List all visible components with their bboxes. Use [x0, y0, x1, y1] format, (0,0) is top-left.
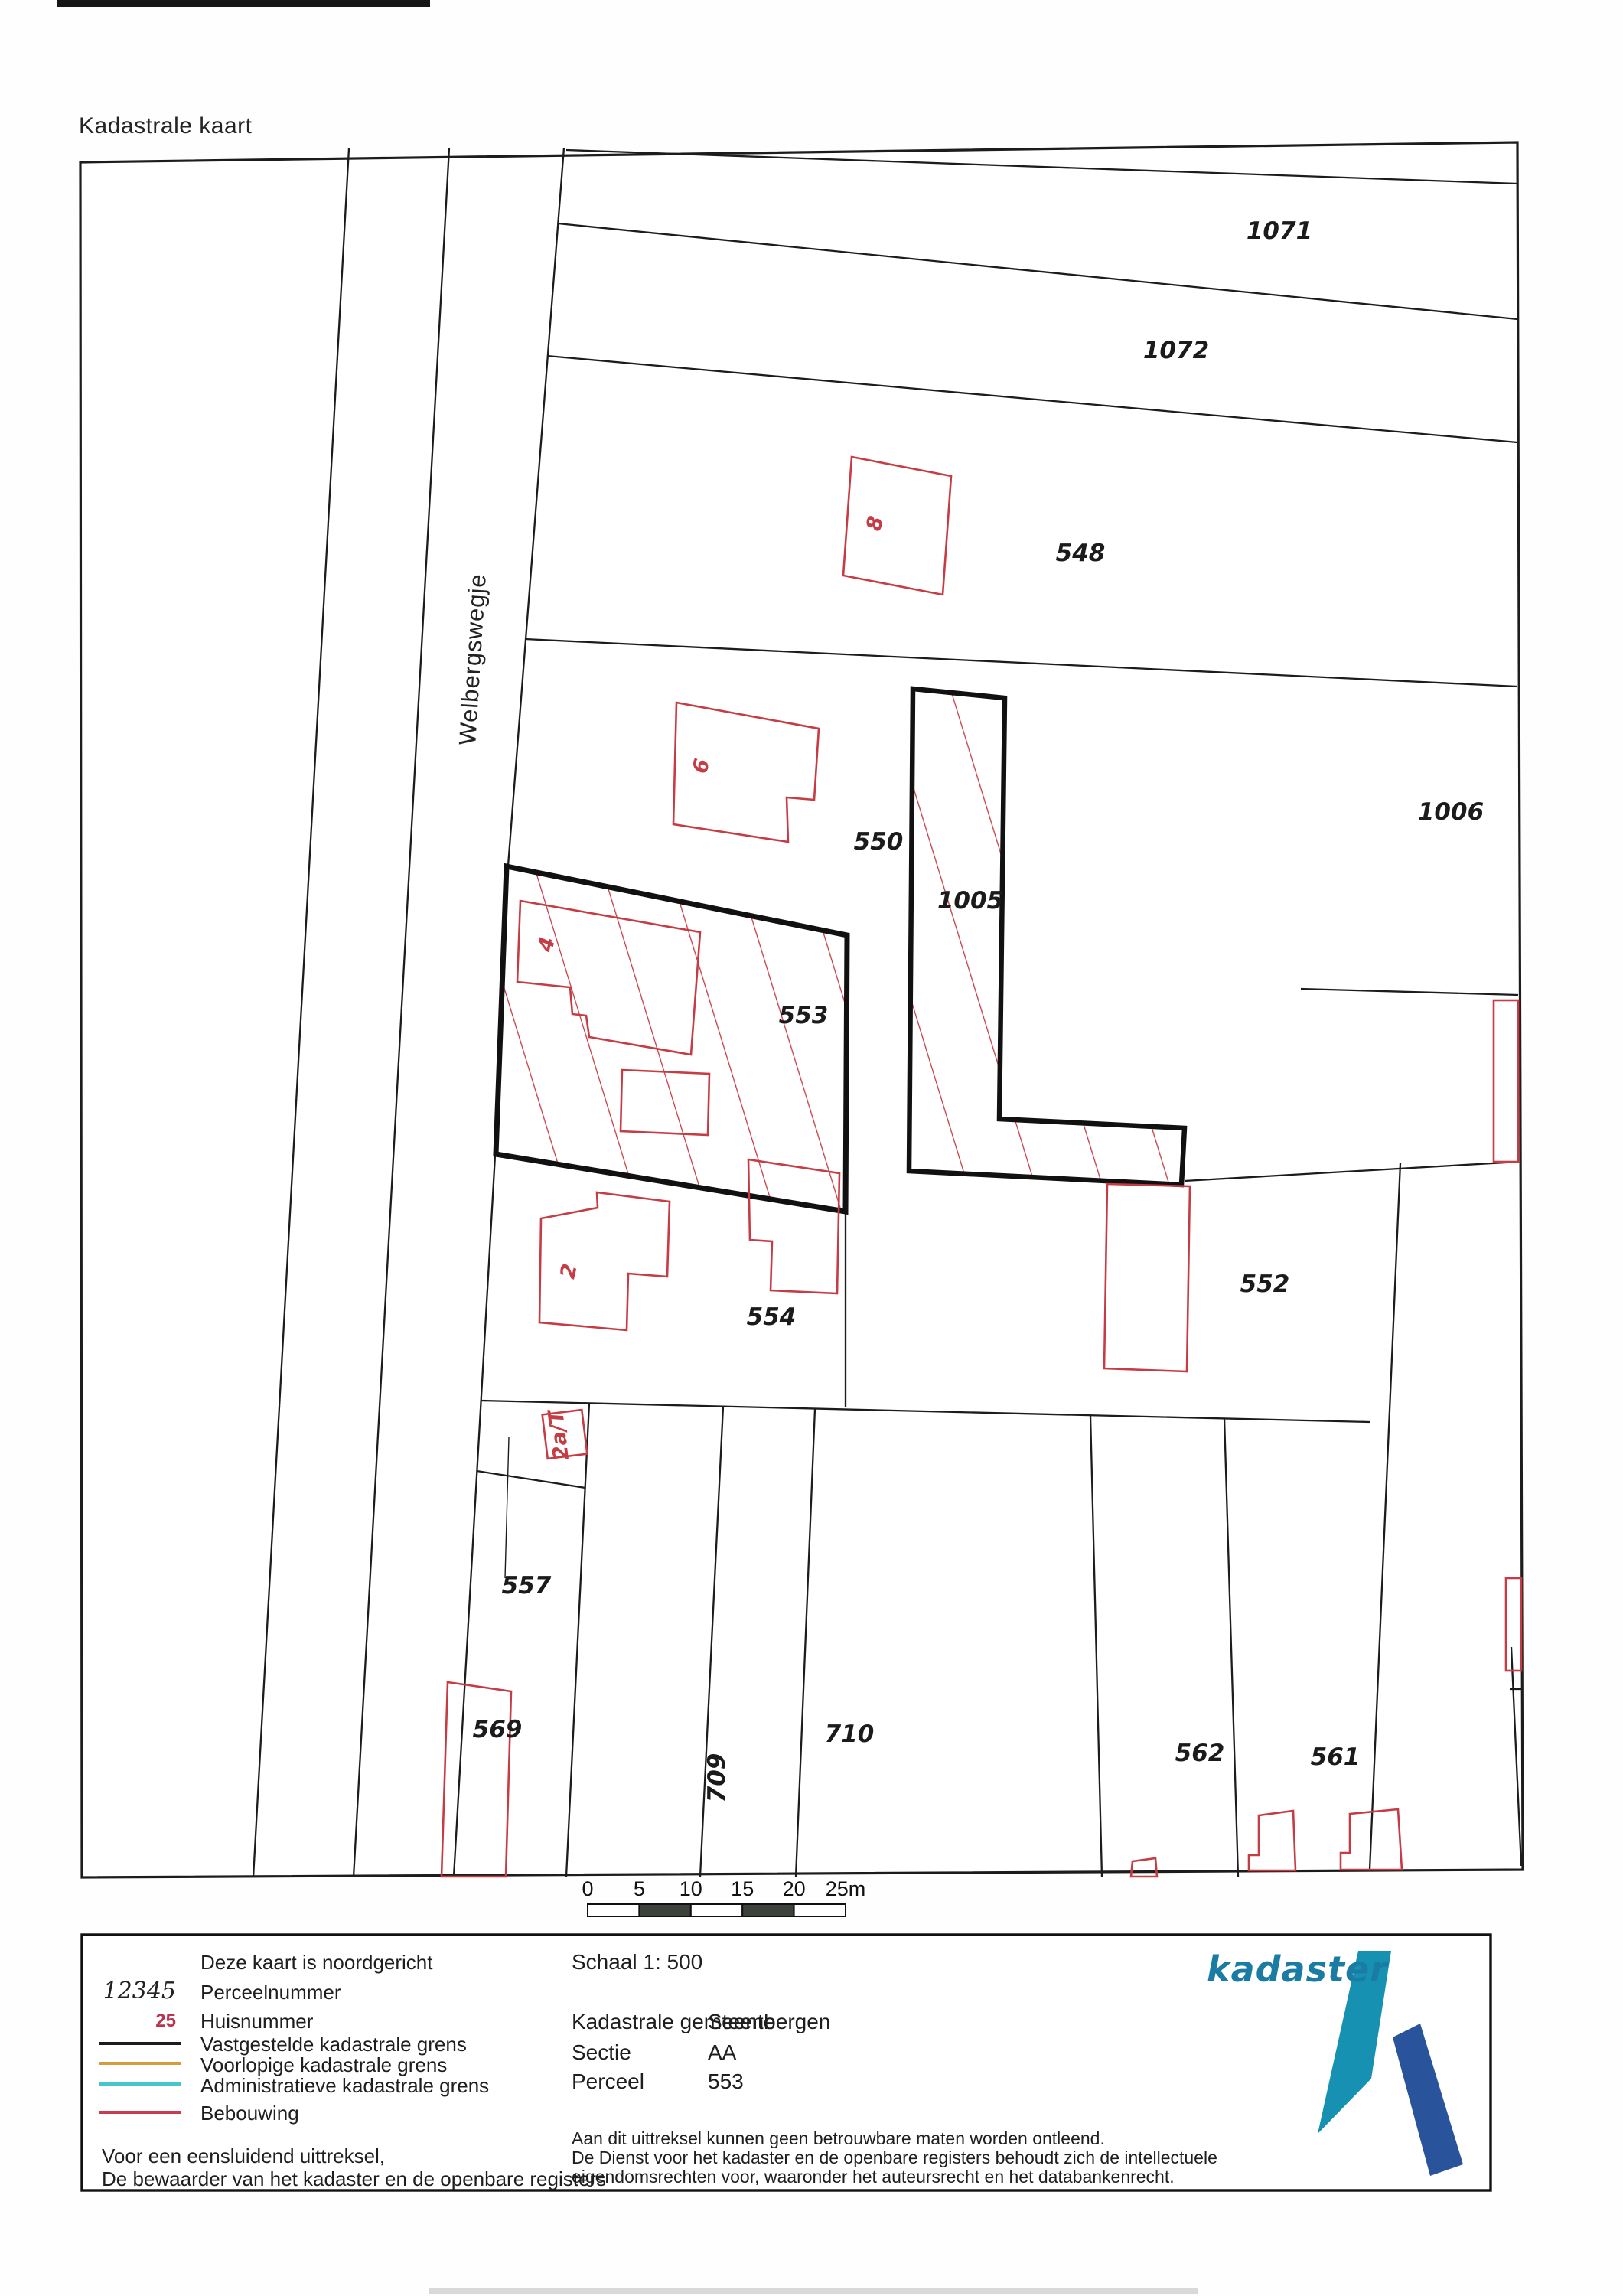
parcel-label-553: 553 [779, 1002, 829, 1029]
legend-parcel-number-sample: 12345 [98, 1978, 176, 2004]
legend-administratief-label: Administratieve kadastrale grens [200, 2074, 489, 2098]
scan-artifact-bottom [429, 2288, 1198, 2294]
sectie-label: Sectie [572, 2040, 631, 2065]
parcel-label-569: 569 [473, 1716, 523, 1743]
parcel-label-548: 548 [1056, 540, 1106, 567]
attestation-line-1: Voor een eensluidend uittreksel, [102, 2144, 385, 2168]
parcel-label-1005: 1005 [937, 887, 1003, 915]
legend-line-bebouwing [99, 2111, 181, 2114]
parcel-label-552: 552 [1240, 1270, 1290, 1298]
parcel-label-554: 554 [747, 1303, 797, 1331]
legend-house-number-label: Huisnummer [200, 2010, 313, 2033]
disclaimer-line-1: Aan dit uittreksel kunnen geen betrouwba… [572, 2128, 1105, 2149]
kadaster-logo-text: kadaster [1207, 1949, 1388, 1990]
legend-line-voorlopig [99, 2062, 181, 2065]
scale-tick-0: 0 [582, 1877, 593, 1900]
parcel-label-562: 562 [1175, 1740, 1225, 1767]
attestation-line-2: De bewaarder van het kadaster en de open… [102, 2167, 606, 2191]
parcel-label-1071: 1071 [1247, 217, 1312, 245]
parcel-label-1072: 1072 [1143, 337, 1209, 364]
parcel-label-561: 561 [1311, 1743, 1361, 1771]
parcel-label-1006: 1006 [1418, 798, 1484, 826]
scale-bar-ticks: 0510152025m [582, 1877, 865, 1900]
scale-tick-10: 10 [680, 1877, 702, 1900]
legend-bebouwing-label: Bebouwing [200, 2102, 299, 2125]
parcel-label-709: 709 [703, 1753, 731, 1803]
scale-tick-15: 15 [731, 1877, 754, 1900]
parcel-label-550: 550 [854, 828, 904, 856]
sectie-value: AA [708, 2040, 736, 2065]
perceel-value: 553 [708, 2069, 744, 2094]
legend-north-note: Deze kaart is noordgericht [200, 1951, 432, 1975]
legend-parcel-number-label: Perceelnummer [200, 1981, 341, 2004]
disclaimer-line-3: eigendomsrechten voor, waaronder het aut… [572, 2167, 1175, 2187]
parcel-label-710: 710 [825, 1720, 875, 1748]
scale-bar: 0510152025m [582, 1877, 865, 1916]
gemeente-value: Steenbergen [708, 2010, 830, 2034]
legend-line-vastgesteld [99, 2042, 181, 2045]
parcel-label-557: 557 [502, 1572, 552, 1600]
scale-tick-25m: 25m [826, 1877, 866, 1900]
legend-house-number-sample: 25 [98, 2011, 176, 2032]
page-title: Kadastrale kaart [79, 113, 252, 139]
scan-artifact-top [57, 0, 430, 7]
scale-text: Schaal 1: 500 [572, 1950, 702, 1975]
disclaimer-line-2: De Dienst voor het kadaster en de openba… [572, 2148, 1217, 2168]
scale-tick-5: 5 [634, 1877, 645, 1900]
perceel-label: Perceel [572, 2069, 644, 2094]
scale-tick-20: 20 [783, 1877, 806, 1900]
legend-line-administratief [99, 2082, 181, 2086]
kadastrale-kaart-page: Kadastrale kaart [0, 0, 1623, 2296]
